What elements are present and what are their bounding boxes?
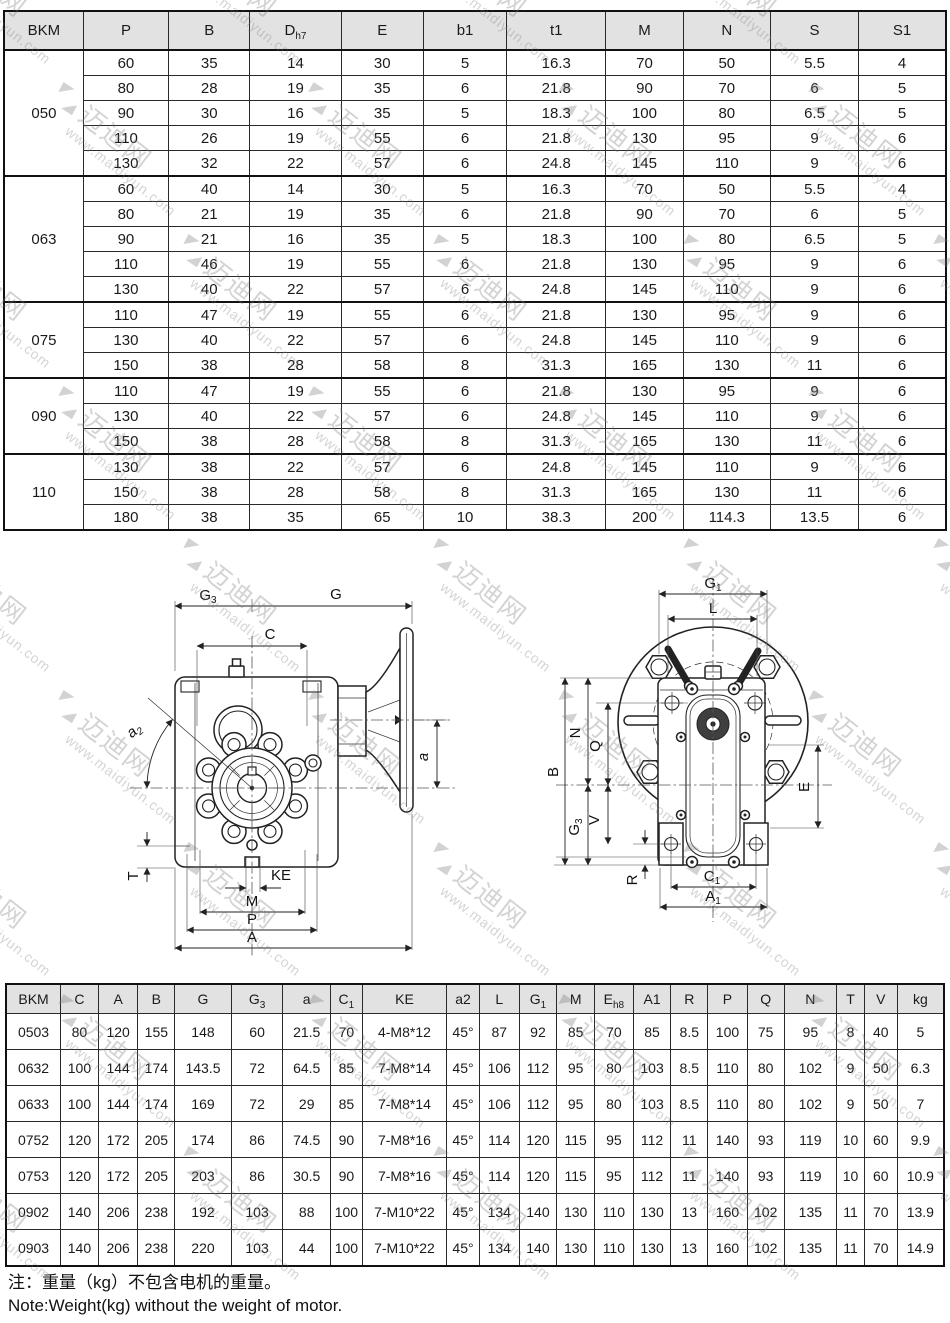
table-cell: 130 bbox=[83, 277, 168, 303]
table-cell: 50 bbox=[864, 1050, 897, 1086]
table-cell: 38 bbox=[169, 480, 250, 505]
table-cell: 6 bbox=[423, 302, 506, 328]
table-cell: 10.9 bbox=[897, 1158, 944, 1194]
table-cell: 57 bbox=[341, 328, 423, 353]
t1-header: N bbox=[683, 11, 770, 50]
table-cell: 115 bbox=[557, 1122, 595, 1158]
table-cell: 130 bbox=[83, 151, 168, 177]
table-cell: 6 bbox=[859, 480, 946, 505]
table-cell: 9 bbox=[770, 404, 858, 429]
table-cell: 90 bbox=[83, 101, 168, 126]
table-cell: 38.3 bbox=[507, 505, 606, 531]
table-cell: 102 bbox=[784, 1086, 837, 1122]
table-cell: 47 bbox=[169, 378, 250, 404]
table-cell: 4-M8*12 bbox=[362, 1014, 446, 1050]
table-cell: 100 bbox=[606, 101, 683, 126]
dim-label-C: C bbox=[265, 626, 276, 643]
table-cell: 150 bbox=[83, 429, 168, 455]
table-cell: 9 bbox=[770, 378, 858, 404]
dimension-table-top: BKMPBDh7Eb1t1MNSS105060351430516.370505.… bbox=[3, 10, 947, 531]
t2-header: G bbox=[175, 984, 232, 1014]
table-cell: 18.3 bbox=[507, 101, 606, 126]
table-cell: 72 bbox=[231, 1050, 283, 1086]
table-cell: 114 bbox=[479, 1122, 519, 1158]
table-cell: 38 bbox=[169, 454, 250, 480]
table-cell: 8.5 bbox=[671, 1086, 708, 1122]
table-cell: 106 bbox=[479, 1086, 519, 1122]
table-cell: 95 bbox=[595, 1122, 634, 1158]
table-cell: 90 bbox=[606, 202, 683, 227]
catalog-page: BKMPBDh7Eb1t1MNSS105060351430516.370505.… bbox=[0, 0, 950, 1323]
table-cell: 145 bbox=[606, 404, 683, 429]
table-cell: 19 bbox=[250, 252, 341, 277]
table-cell: 6.3 bbox=[897, 1050, 944, 1086]
table-cell: 100 bbox=[606, 227, 683, 252]
table-cell: 21.8 bbox=[507, 252, 606, 277]
table-cell: 102 bbox=[784, 1050, 837, 1086]
table-cell: 238 bbox=[138, 1194, 175, 1230]
table-cell: 6 bbox=[859, 302, 946, 328]
table-cell: 165 bbox=[606, 429, 683, 455]
table-cell: 95 bbox=[595, 1158, 634, 1194]
table-cell: 6 bbox=[859, 378, 946, 404]
t2-header: a2 bbox=[447, 984, 480, 1014]
table-cell: 5 bbox=[423, 101, 506, 126]
table-cell: 110 bbox=[83, 252, 168, 277]
table-cell: 130 bbox=[606, 302, 683, 328]
table-cell: 8 bbox=[423, 353, 506, 379]
table-cell: 65 bbox=[341, 505, 423, 531]
table-cell: 106 bbox=[479, 1050, 519, 1086]
note-en: Note:Weight(kg) without the weight of mo… bbox=[8, 1294, 342, 1317]
table-cell: 5 bbox=[859, 227, 946, 252]
table-cell: 7-M10*22 bbox=[362, 1230, 446, 1267]
t1-header: BKM bbox=[4, 11, 83, 50]
table-cell: 110 bbox=[683, 151, 770, 177]
table-cell: 155 bbox=[138, 1014, 175, 1050]
table-cell: 13.5 bbox=[770, 505, 858, 531]
table-cell: 80 bbox=[747, 1050, 784, 1086]
table-cell: 112 bbox=[633, 1158, 671, 1194]
table-cell: 85 bbox=[633, 1014, 671, 1050]
table-cell: 40 bbox=[864, 1014, 897, 1050]
table-cell: 9 bbox=[770, 151, 858, 177]
t2-header: V bbox=[864, 984, 897, 1014]
table-cell: 31.3 bbox=[507, 429, 606, 455]
table-cell: 22 bbox=[250, 151, 341, 177]
table-cell: 140 bbox=[519, 1230, 557, 1267]
table-cell: 9 bbox=[770, 126, 858, 151]
bkm-size-cell: 090 bbox=[4, 378, 83, 454]
side-handle-right bbox=[765, 716, 801, 725]
table-cell: 24.8 bbox=[507, 454, 606, 480]
table-cell: 103 bbox=[633, 1050, 671, 1086]
table-cell: 140 bbox=[708, 1158, 748, 1194]
side-boss bbox=[305, 755, 321, 771]
table-cell: 35 bbox=[341, 76, 423, 101]
table-cell: 6 bbox=[423, 76, 506, 101]
table-cell: 45° bbox=[447, 1086, 480, 1122]
table-cell: 120 bbox=[519, 1158, 557, 1194]
table-cell: 120 bbox=[98, 1014, 138, 1050]
table-cell: 9 bbox=[770, 328, 858, 353]
note-cn: 注：重量（kg）不包含电机的重量。 bbox=[8, 1271, 342, 1294]
table-cell: 9 bbox=[837, 1050, 865, 1086]
table-cell: 44 bbox=[283, 1230, 331, 1267]
t1-header: M bbox=[606, 11, 683, 50]
table-cell: 206 bbox=[98, 1230, 138, 1267]
table-cell: 21.8 bbox=[507, 302, 606, 328]
table-cell: 130 bbox=[83, 404, 168, 429]
table-cell: 95 bbox=[557, 1050, 595, 1086]
t1-header: b1 bbox=[423, 11, 506, 50]
table-cell: 30 bbox=[341, 176, 423, 202]
table-cell: 45° bbox=[447, 1014, 480, 1050]
table-cell: 32 bbox=[169, 151, 250, 177]
table-cell: 10 bbox=[837, 1158, 865, 1194]
table-cell: 22 bbox=[250, 328, 341, 353]
table-cell: 5 bbox=[859, 101, 946, 126]
table-cell: 14 bbox=[250, 50, 341, 76]
table-cell: 220 bbox=[175, 1230, 232, 1267]
table-cell: 110 bbox=[683, 328, 770, 353]
table-cell: 130 bbox=[606, 252, 683, 277]
table-cell: 119 bbox=[784, 1122, 837, 1158]
table-cell: 7 bbox=[897, 1086, 944, 1122]
table-cell: 16.3 bbox=[507, 50, 606, 76]
dim-label-T: T bbox=[125, 871, 142, 880]
table-cell: 5 bbox=[897, 1014, 944, 1050]
dim-label-a2: a2 bbox=[123, 719, 146, 743]
table-cell: 144 bbox=[98, 1050, 138, 1086]
t1-header: S1 bbox=[859, 11, 946, 50]
table-cell: 21.8 bbox=[507, 76, 606, 101]
table-cell: 4 bbox=[859, 50, 946, 76]
t2-header: kg bbox=[897, 984, 944, 1014]
table-cell: 110 bbox=[83, 126, 168, 151]
table-cell: 5 bbox=[859, 202, 946, 227]
table-cell: 143.5 bbox=[175, 1050, 232, 1086]
table-cell: 57 bbox=[341, 151, 423, 177]
t1-header: B bbox=[169, 11, 250, 50]
table-cell: 24.8 bbox=[507, 404, 606, 429]
table-cell: 6.5 bbox=[770, 227, 858, 252]
table-cell: 140 bbox=[61, 1194, 99, 1230]
table-cell: 35 bbox=[341, 227, 423, 252]
table-cell: 16 bbox=[250, 101, 341, 126]
table-cell: 6 bbox=[770, 202, 858, 227]
table-cell: 45° bbox=[447, 1230, 480, 1267]
table-cell: 120 bbox=[61, 1158, 99, 1194]
table-cell: 140 bbox=[61, 1230, 99, 1267]
table-cell: 6.5 bbox=[770, 101, 858, 126]
table-cell: 114.3 bbox=[683, 505, 770, 531]
table-cell: 11 bbox=[770, 429, 858, 455]
t2-header: G3 bbox=[231, 984, 283, 1014]
table-cell: 0632 bbox=[6, 1050, 61, 1086]
t2-header: Eh8 bbox=[595, 984, 634, 1014]
table-cell: 21 bbox=[169, 202, 250, 227]
table-cell: 19 bbox=[250, 378, 341, 404]
table-cell: 100 bbox=[61, 1050, 99, 1086]
table-cell: 8.5 bbox=[671, 1014, 708, 1050]
table-cell: 150 bbox=[83, 353, 168, 379]
table-cell: 95 bbox=[683, 126, 770, 151]
table-cell: 93 bbox=[747, 1122, 784, 1158]
table-cell: 9 bbox=[837, 1086, 865, 1122]
table-cell: 6 bbox=[859, 252, 946, 277]
table-cell: 172 bbox=[98, 1122, 138, 1158]
table-cell: 102 bbox=[747, 1194, 784, 1230]
table-cell: 200 bbox=[606, 505, 683, 531]
table-cell: 21.8 bbox=[507, 126, 606, 151]
table-cell: 6 bbox=[423, 126, 506, 151]
table-cell: 169 bbox=[175, 1086, 232, 1122]
table-cell: 57 bbox=[341, 454, 423, 480]
table-cell: 9 bbox=[770, 277, 858, 303]
side-handle-left bbox=[624, 716, 660, 725]
table-cell: 70 bbox=[331, 1014, 363, 1050]
dim-label-G3: G3 bbox=[199, 587, 217, 606]
t2-header: A bbox=[98, 984, 138, 1014]
table-cell: 70 bbox=[864, 1230, 897, 1267]
table-cell: 45° bbox=[447, 1050, 480, 1086]
table-cell: 145 bbox=[606, 328, 683, 353]
table-cell: 57 bbox=[341, 404, 423, 429]
dim-label-P: P bbox=[247, 911, 257, 928]
table-cell: 6 bbox=[859, 429, 946, 455]
t2-header: C1 bbox=[331, 984, 363, 1014]
table-cell: 114 bbox=[479, 1158, 519, 1194]
table-cell: 6 bbox=[859, 353, 946, 379]
table-cell: 6 bbox=[423, 378, 506, 404]
table-cell: 35 bbox=[341, 202, 423, 227]
t2-header: a bbox=[283, 984, 331, 1014]
table-cell: 86 bbox=[231, 1158, 283, 1194]
table-cell: 95 bbox=[784, 1014, 837, 1050]
table-cell: 38 bbox=[169, 353, 250, 379]
table-cell: 95 bbox=[683, 252, 770, 277]
table-cell: 7-M8*16 bbox=[362, 1158, 446, 1194]
table-cell: 103 bbox=[231, 1194, 283, 1230]
dim-label-C1: C1 bbox=[704, 868, 721, 887]
table-cell: 140 bbox=[708, 1122, 748, 1158]
table-cell: 85 bbox=[331, 1050, 363, 1086]
table-cell: 11 bbox=[837, 1230, 865, 1267]
table-cell: 70 bbox=[606, 176, 683, 202]
table-cell: 0503 bbox=[6, 1014, 61, 1050]
table-cell: 60 bbox=[83, 176, 168, 202]
table-cell: 238 bbox=[138, 1230, 175, 1267]
table-cell: 18.3 bbox=[507, 227, 606, 252]
table-cell: 38 bbox=[169, 429, 250, 455]
table-cell: 80 bbox=[61, 1014, 99, 1050]
table-cell: 6 bbox=[423, 202, 506, 227]
dim-label-N: N bbox=[567, 728, 584, 739]
table-cell: 160 bbox=[708, 1230, 748, 1267]
table-cell: 40 bbox=[169, 176, 250, 202]
t1-header: P bbox=[83, 11, 168, 50]
table-cell: 10 bbox=[423, 505, 506, 531]
table-cell: 130 bbox=[633, 1230, 671, 1267]
bkm-size-cell: 075 bbox=[4, 302, 83, 378]
table-cell: 30 bbox=[341, 50, 423, 76]
table-cell: 130 bbox=[83, 454, 168, 480]
dim-label-G1: G1 bbox=[704, 575, 722, 594]
table-cell: 165 bbox=[606, 353, 683, 379]
table-cell: 58 bbox=[341, 480, 423, 505]
table-cell: 206 bbox=[98, 1194, 138, 1230]
table-cell: 130 bbox=[83, 328, 168, 353]
table-cell: 14.9 bbox=[897, 1230, 944, 1267]
table-cell: 86 bbox=[231, 1122, 283, 1158]
table-cell: 95 bbox=[683, 378, 770, 404]
table-cell: 205 bbox=[138, 1122, 175, 1158]
table-cell: 140 bbox=[519, 1194, 557, 1230]
table-cell: 55 bbox=[341, 126, 423, 151]
table-cell: 35 bbox=[341, 101, 423, 126]
table-cell: 85 bbox=[557, 1014, 595, 1050]
table-cell: 31.3 bbox=[507, 480, 606, 505]
notes: 注：重量（kg）不包含电机的重量。 Note:Weight(kg) withou… bbox=[8, 1271, 342, 1318]
table-cell: 19 bbox=[250, 76, 341, 101]
dim-label-G3-right: G3 bbox=[566, 818, 585, 836]
table-cell: 88 bbox=[283, 1194, 331, 1230]
t1-header: t1 bbox=[507, 11, 606, 50]
t2-header: A1 bbox=[633, 984, 671, 1014]
table-cell: 28 bbox=[250, 353, 341, 379]
table-cell: 205 bbox=[138, 1158, 175, 1194]
dim-label-B: B bbox=[545, 767, 562, 777]
t2-header: N bbox=[784, 984, 837, 1014]
dim-label-A: A bbox=[247, 929, 257, 946]
table-cell: 29 bbox=[283, 1086, 331, 1122]
table-cell: 6 bbox=[859, 454, 946, 480]
table-cell: 70 bbox=[864, 1194, 897, 1230]
table-cell: 6 bbox=[423, 328, 506, 353]
table-cell: 7-M10*22 bbox=[362, 1194, 446, 1230]
table-cell: 11 bbox=[837, 1194, 865, 1230]
table-cell: 16.3 bbox=[507, 176, 606, 202]
bkm-size-cell: 063 bbox=[4, 176, 83, 302]
t2-header: BKM bbox=[6, 984, 61, 1014]
dim-label-KE: KE bbox=[271, 867, 291, 884]
table-cell: 80 bbox=[595, 1050, 634, 1086]
table-cell: 110 bbox=[683, 277, 770, 303]
table-cell: 7-M8*14 bbox=[362, 1050, 446, 1086]
table-cell: 9.9 bbox=[897, 1122, 944, 1158]
table-cell: 11 bbox=[770, 480, 858, 505]
table-cell: 22 bbox=[250, 404, 341, 429]
t2-header: Q bbox=[747, 984, 784, 1014]
t2-header: B bbox=[138, 984, 175, 1014]
table-cell: 90 bbox=[83, 227, 168, 252]
table-cell: 80 bbox=[83, 76, 168, 101]
table-cell: 4 bbox=[859, 176, 946, 202]
table-cell: 110 bbox=[708, 1050, 748, 1086]
table-cell: 8 bbox=[423, 429, 506, 455]
table-cell: 80 bbox=[683, 101, 770, 126]
t2-header: R bbox=[671, 984, 708, 1014]
table-cell: 110 bbox=[83, 378, 168, 404]
table-cell: 21.5 bbox=[283, 1014, 331, 1050]
table-cell: 30.5 bbox=[283, 1158, 331, 1194]
table-cell: 103 bbox=[633, 1086, 671, 1122]
dim-label-M: M bbox=[246, 893, 259, 910]
t2-header: G1 bbox=[519, 984, 557, 1014]
table-cell: 5.5 bbox=[770, 176, 858, 202]
table-cell: 50 bbox=[864, 1086, 897, 1122]
table-cell: 40 bbox=[169, 404, 250, 429]
table-cell: 7-M8*16 bbox=[362, 1122, 446, 1158]
table-cell: 6 bbox=[423, 404, 506, 429]
table-cell: 75 bbox=[747, 1014, 784, 1050]
table-cell: 38 bbox=[169, 505, 250, 531]
table-cell: 8.5 bbox=[671, 1050, 708, 1086]
table-cell: 45° bbox=[447, 1122, 480, 1158]
table-cell: 21 bbox=[169, 227, 250, 252]
table-cell: 10 bbox=[837, 1122, 865, 1158]
table-cell: 57 bbox=[341, 277, 423, 303]
t2-header: M bbox=[557, 984, 595, 1014]
table-cell: 47 bbox=[169, 302, 250, 328]
table-cell: 72 bbox=[231, 1086, 283, 1122]
dimension-table-bottom: BKMCABGG3aC1KEa2LG1MEh8A1RPQNTVkg0503801… bbox=[5, 983, 945, 1267]
table-cell: 130 bbox=[606, 378, 683, 404]
table-cell: 13 bbox=[671, 1230, 708, 1267]
table-cell: 0902 bbox=[6, 1194, 61, 1230]
table-cell: 6 bbox=[423, 252, 506, 277]
table-cell: 0752 bbox=[6, 1122, 61, 1158]
t1-header: Dh7 bbox=[250, 11, 341, 50]
table-cell: 112 bbox=[519, 1086, 557, 1122]
dim-label-V: V bbox=[586, 815, 603, 825]
table-cell: 70 bbox=[683, 202, 770, 227]
table-cell: 110 bbox=[708, 1086, 748, 1122]
table-cell: 6 bbox=[859, 328, 946, 353]
table-cell: 24.8 bbox=[507, 277, 606, 303]
t1-header: S bbox=[770, 11, 858, 50]
table-cell: 60 bbox=[83, 50, 168, 76]
table-cell: 70 bbox=[606, 50, 683, 76]
breather-plug bbox=[229, 666, 244, 677]
table-cell: 165 bbox=[606, 480, 683, 505]
table-cell: 60 bbox=[864, 1122, 897, 1158]
table-cell: 6 bbox=[859, 505, 946, 531]
table-cell: 45° bbox=[447, 1194, 480, 1230]
table-cell: 11 bbox=[770, 353, 858, 379]
table-cell: 174 bbox=[175, 1122, 232, 1158]
table-cell: 130 bbox=[557, 1194, 595, 1230]
table-cell: 24.8 bbox=[507, 328, 606, 353]
bkm-size-cell: 110 bbox=[4, 454, 83, 530]
table-cell: 46 bbox=[169, 252, 250, 277]
table-cell: 19 bbox=[250, 126, 341, 151]
table-cell: 100 bbox=[708, 1014, 748, 1050]
table-cell: 74.5 bbox=[283, 1122, 331, 1158]
table-cell: 145 bbox=[606, 454, 683, 480]
table-cell: 70 bbox=[683, 76, 770, 101]
table-cell: 28 bbox=[169, 76, 250, 101]
table-cell: 58 bbox=[341, 429, 423, 455]
table-cell: 16 bbox=[250, 227, 341, 252]
table-cell: 21.8 bbox=[507, 378, 606, 404]
table-cell: 9 bbox=[770, 252, 858, 277]
table-cell: 31.3 bbox=[507, 353, 606, 379]
table-cell: 45° bbox=[447, 1158, 480, 1194]
table-cell: 110 bbox=[595, 1194, 634, 1230]
bkm-size-cell: 050 bbox=[4, 50, 83, 176]
